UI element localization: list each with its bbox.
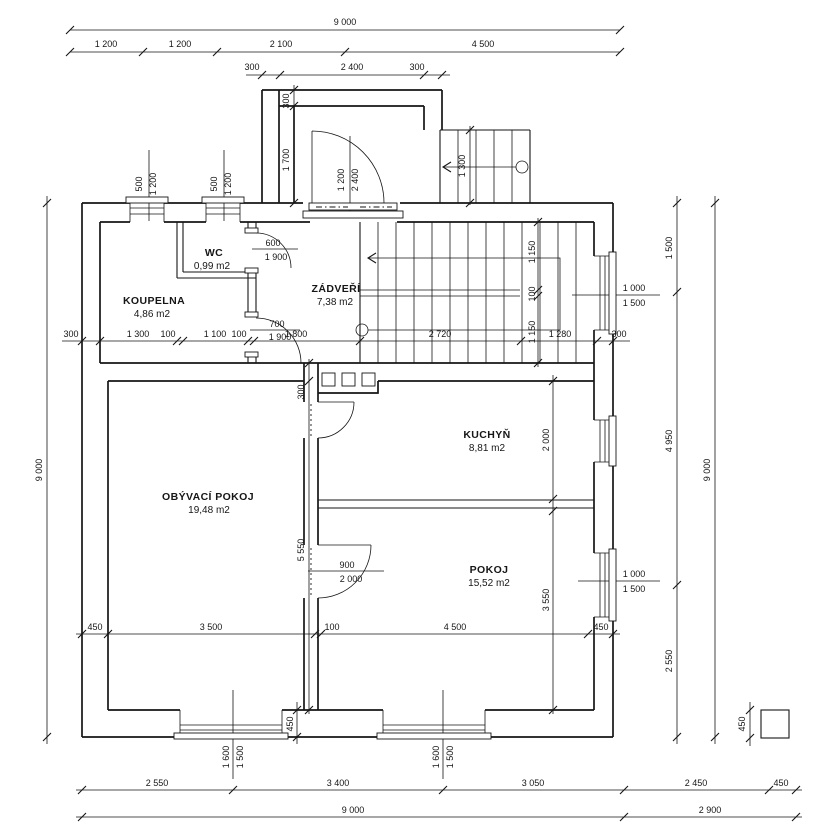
dim-bottom-inner: 3 500: [200, 622, 223, 632]
room-name-obyvaci: OBÝVACÍ POKOJ: [162, 490, 254, 503]
dim-mid: 1 300: [127, 329, 150, 339]
dim-left-total: 9 000: [34, 459, 44, 482]
dim-bottom-window: 1 600: [431, 746, 441, 769]
partition-walls: [177, 222, 594, 508]
dim-room-door: 900: [339, 560, 354, 570]
dim-porch: 2 400: [341, 62, 364, 72]
door-jamb: [245, 228, 258, 233]
dim-bottom-inner: 4 500: [444, 622, 467, 632]
dim-pier: 450: [737, 716, 747, 731]
dim-bottom-inner: 100: [324, 622, 339, 632]
dim-outdoor-stair: 1 300: [457, 155, 467, 178]
dim-top-total: 9 000: [334, 17, 357, 27]
room-area-wc: 0,99 m2: [194, 261, 231, 272]
dim-window: 1 200: [223, 173, 233, 196]
dim-stair-flight: 1 150: [527, 321, 537, 344]
chimney-flue: [342, 373, 355, 386]
outdoor-stair-outline: [440, 130, 530, 203]
dim-line-set: [47, 30, 802, 817]
stair-treads: [378, 222, 576, 363]
dim-bottom1: 3 400: [327, 778, 350, 788]
dim-ticks: [43, 26, 800, 821]
dim-side-window: 1 000: [623, 283, 646, 293]
dimension-labels: 9 000 1 200 1 200 2 100 4 500 300 2 400 …: [34, 17, 789, 815]
door-jamb: [245, 312, 258, 317]
dim-top: 2 100: [270, 39, 293, 49]
north-window-sill: [126, 197, 168, 203]
dim-kitchen-col: 3 550: [541, 589, 551, 612]
room-area-kuchyn: 8,81 m2: [469, 443, 506, 454]
dim-porch: 300: [409, 62, 424, 72]
dim-top: 1 200: [95, 39, 118, 49]
dim-room-door: 2 000: [340, 574, 363, 584]
dim-side-window: 1 000: [623, 569, 646, 579]
room-name-wc: WC: [205, 247, 223, 259]
room-name-zadveri: ZÁDVEŘÍ: [312, 282, 362, 295]
dim-right-total: 9 000: [702, 459, 712, 482]
dim-side-window: 1 500: [623, 584, 646, 594]
fixtures: [322, 373, 789, 738]
dim-mid: 100: [160, 329, 175, 339]
dim-living-col: 5 550: [296, 539, 306, 562]
dim-right: 2 550: [664, 650, 674, 673]
dim-mid: 1 280: [549, 329, 572, 339]
dim-mid: 300: [63, 329, 78, 339]
dim-bottom1: 2 550: [146, 778, 169, 788]
floor-plan-drawing: 9 000 1 200 1 200 2 100 4 500 300 2 400 …: [0, 0, 820, 834]
dim-bottom-inner: 450: [87, 622, 102, 632]
south-window-sill: [377, 733, 491, 739]
dim-bath-door: 1 900: [269, 332, 292, 342]
dim-wc-door: 600: [265, 238, 280, 248]
dim-window: 500: [209, 176, 219, 191]
outdoor-stair-start-circle: [516, 161, 528, 173]
east-window-sill: [609, 252, 616, 334]
entry-step-upper: [309, 203, 397, 210]
dim-bottom2: 2 900: [699, 805, 722, 815]
dim-kitchen-col: 2 000: [541, 429, 551, 452]
dim-top: 1 200: [169, 39, 192, 49]
chimney-flue: [362, 373, 375, 386]
garden-pier: [761, 710, 789, 738]
door-jamb: [245, 352, 258, 357]
dim-bottom1: 450: [773, 778, 788, 788]
dim-window: 500: [134, 176, 144, 191]
pokoj-door-swing: [318, 545, 371, 598]
dim-bath-door: 700: [269, 319, 284, 329]
dim-porch: 300: [244, 62, 259, 72]
dim-bottom-wall: 450: [285, 716, 295, 731]
room-area-zadveri: 7,38 m2: [317, 297, 354, 308]
east-window-sill: [609, 416, 616, 466]
dim-bottom2: 9 000: [342, 805, 365, 815]
room-name-pokoj: POKOJ: [470, 564, 509, 576]
dim-bottom1: 3 050: [522, 778, 545, 788]
entry-door-swing: [312, 131, 384, 203]
east-window-sill: [609, 549, 616, 621]
dim-entry-door: 1 200: [336, 169, 346, 192]
stair-start-circle: [356, 324, 368, 336]
dim-bottom-window: 1 500: [235, 746, 245, 769]
south-window-sill: [174, 733, 288, 739]
dim-mid: 2 720: [429, 329, 452, 339]
doors: [245, 131, 384, 598]
dim-top: 4 500: [472, 39, 495, 49]
outer-and-inner-walls: [82, 90, 613, 737]
dim-porch-side: 300: [281, 93, 291, 108]
dim-side-window: 1 500: [623, 298, 646, 308]
dim-mid: 100: [231, 329, 246, 339]
dim-living-col: 300: [296, 384, 306, 399]
room-labels: WC 0,99 m2 KOUPELNA 4,86 m2 ZÁDVEŘÍ 7,38…: [123, 247, 511, 589]
dim-right: 4 950: [664, 430, 674, 453]
north-window-sill: [202, 197, 244, 203]
dim-bottom1: 2 450: [685, 778, 708, 788]
dim-bottom-inner: 450: [593, 622, 608, 632]
dim-stair-gap: 100: [527, 286, 537, 301]
stair-rail: [360, 290, 520, 296]
walls: [82, 90, 613, 737]
dim-entry-door: 2 400: [350, 169, 360, 192]
indoor-staircase: [356, 222, 576, 363]
room-name-kuchyn: KUCHYŇ: [463, 428, 510, 441]
dim-mid: 300: [611, 329, 626, 339]
chimney-flue: [322, 373, 335, 386]
dim-right: 1 500: [664, 237, 674, 260]
door-jamb: [245, 268, 258, 273]
north-windows-glazing: [130, 203, 240, 222]
room-area-obyvaci: 19,48 m2: [188, 505, 230, 516]
dim-wc-door: 1 900: [265, 252, 288, 262]
dim-mid: 1 100: [204, 329, 227, 339]
dim-bottom-window: 1 600: [221, 746, 231, 769]
kitchen-door-swing: [318, 402, 354, 438]
room-name-koupelna: KOUPELNA: [123, 295, 185, 307]
dim-bottom-window: 1 500: [445, 746, 455, 769]
dimension-lines: [43, 26, 802, 821]
entry-step-lower: [303, 211, 403, 218]
dim-porch-side: 1 700: [281, 149, 291, 172]
room-area-koupelna: 4,86 m2: [134, 309, 171, 320]
room-area-pokoj: 15,52 m2: [468, 578, 510, 589]
dim-window: 1 200: [148, 173, 158, 196]
dim-stair-flight: 1 150: [527, 241, 537, 264]
floor-plan-page: 9 000 1 200 1 200 2 100 4 500 300 2 400 …: [0, 0, 820, 834]
